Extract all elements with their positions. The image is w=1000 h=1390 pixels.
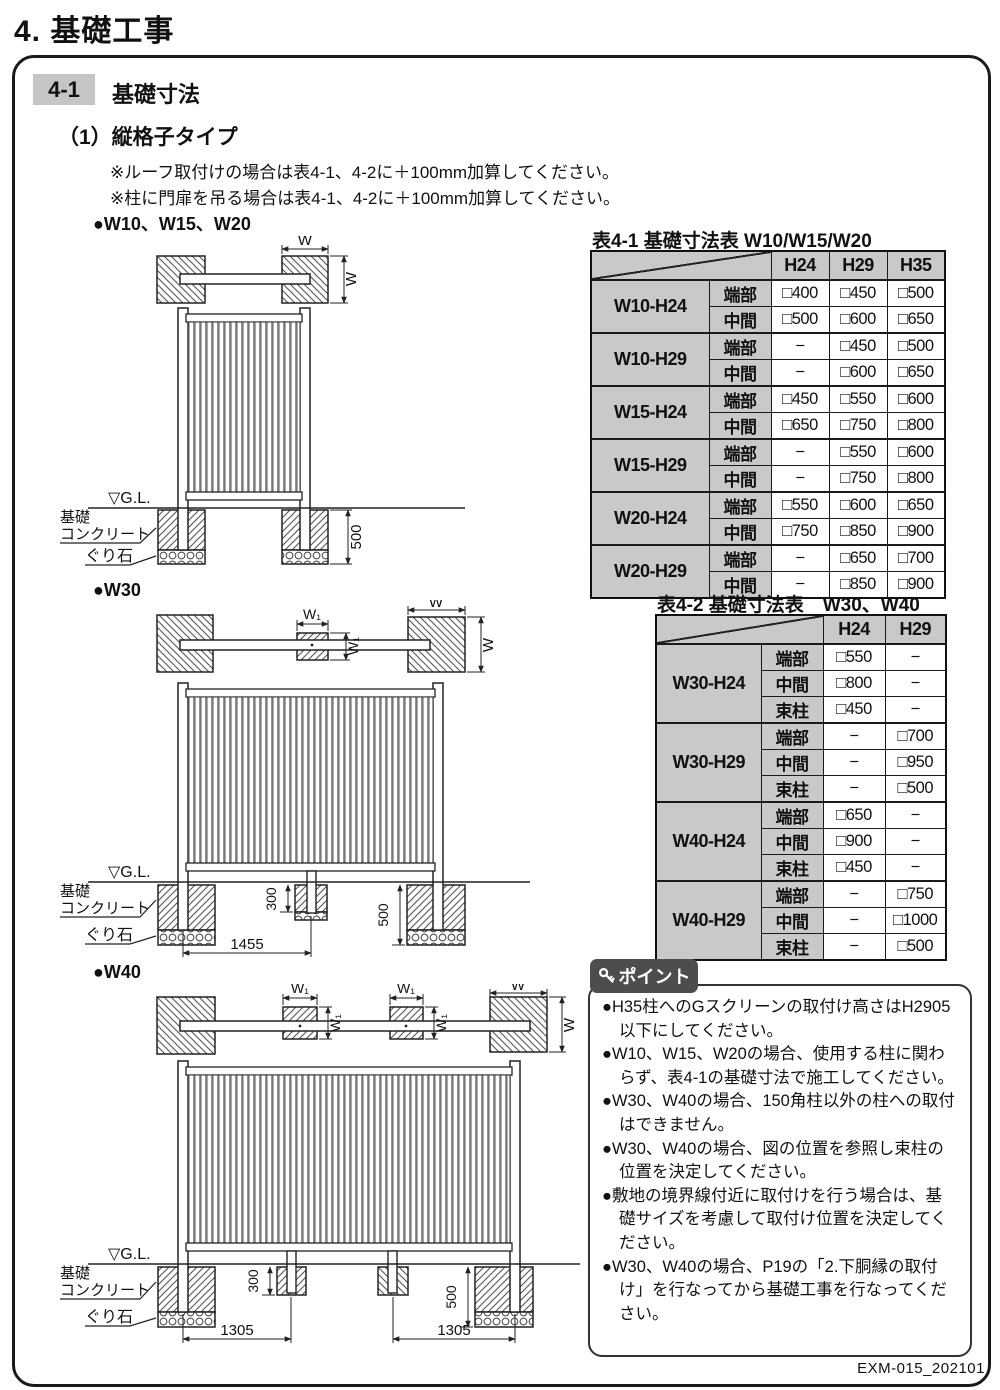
point-item: ●W30、W40の場合、150角柱以外の柱への取付はできません。 [602, 1090, 958, 1137]
concrete-label: 基礎 [60, 1265, 90, 1282]
dim-1455-label: 1455 [230, 936, 263, 953]
group-label: W15-H24 [591, 386, 709, 439]
value-cell: □450 [823, 855, 885, 882]
dim-500-label: 500 [348, 524, 365, 549]
subsection-title: （1）縦格子タイプ [58, 121, 238, 151]
value-cell: □450 [829, 280, 887, 307]
concrete-label: コンクリート [60, 526, 150, 543]
part-label: 端部 [761, 723, 823, 750]
value-cell: − [885, 802, 946, 829]
value-cell: □500 [771, 307, 829, 334]
part-label: 端部 [761, 802, 823, 829]
value-cell: □500 [887, 333, 945, 360]
dim-w-label: W [480, 637, 497, 652]
group-label: W30-H29 [656, 723, 761, 802]
value-cell: □900 [823, 829, 885, 855]
value-cell: □950 [885, 750, 946, 776]
part-label: 中間 [761, 750, 823, 776]
value-cell: □550 [823, 644, 885, 671]
column-header: H24 [771, 251, 829, 280]
value-cell: □450 [829, 333, 887, 360]
value-cell: □550 [829, 386, 887, 413]
part-label: 端部 [709, 439, 771, 466]
page-title: 4. 基礎工事 [14, 6, 174, 50]
value-cell: □450 [823, 697, 885, 724]
value-cell: − [885, 829, 946, 855]
concrete-label: コンクリート [60, 900, 150, 917]
part-label: 端部 [761, 881, 823, 908]
table-4-2-title: 表4-2 基礎寸法表 W30、W40 [657, 590, 920, 617]
table-4-2: H24 H29 W30-H24端部□550− 中間□800− 束柱□450− W… [655, 614, 947, 961]
value-cell: □400 [771, 280, 829, 307]
dim-w1-label: W₁ [345, 637, 361, 655]
group-label: W10-H29 [591, 333, 709, 386]
part-label: 中間 [709, 307, 771, 334]
gl-label: ▽G.L. [108, 1246, 151, 1263]
value-cell: □750 [829, 413, 887, 440]
note-line: ※柱に門扉を吊る場合は表4-1、4-2に＋100mm加算してください。 [110, 184, 620, 209]
dim-w1-label: W₁ [291, 984, 309, 996]
value-cell: □750 [885, 881, 946, 908]
stone-label: ぐり石 [85, 548, 133, 565]
value-cell: □750 [829, 466, 887, 493]
key-icon [598, 967, 616, 985]
dim-w1-label: W₁ [327, 1014, 343, 1032]
value-cell: − [823, 723, 885, 750]
group-label: W20-H24 [591, 492, 709, 545]
gl-label: ▽G.L. [108, 490, 151, 507]
dim-w-label: W [511, 984, 526, 994]
column-header: H29 [885, 615, 946, 644]
value-cell: □450 [771, 386, 829, 413]
value-cell: − [823, 776, 885, 803]
point-item: ●W30、W40の場合、P19の「2.下胴縁の取付け」を行なってから基礎工事を行… [602, 1256, 958, 1327]
group-label: W30-H24 [656, 644, 761, 723]
value-cell: − [885, 855, 946, 882]
value-cell: − [823, 881, 885, 908]
points-badge: ポイント [590, 959, 698, 993]
diagram-label-w30: ●W30 [93, 580, 141, 601]
stone-label: ぐり石 [85, 1309, 133, 1326]
diagram-label-w10: ●W10、W15、W20 [93, 210, 251, 236]
value-cell: − [885, 671, 946, 697]
point-item: ●W10、W15、W20の場合、使用する柱に関わらず、表4-1の基礎寸法で施工し… [602, 1043, 958, 1090]
page-footer: EXM-015_202101 [0, 1360, 985, 1377]
concrete-label: 基礎 [60, 509, 90, 526]
value-cell: − [771, 333, 829, 360]
value-cell: − [823, 934, 885, 961]
value-cell: − [885, 644, 946, 671]
part-label: 中間 [709, 413, 771, 440]
value-cell: − [885, 697, 946, 724]
table-4-1: H24 H29 H35 W10-H24端部□400□450□500 中間□500… [590, 250, 946, 599]
dim-w1-label: W₁ [397, 984, 415, 996]
stone-label: ぐり石 [85, 927, 133, 944]
manual-page: 4. 基礎工事 4-1 基礎寸法 （1）縦格子タイプ ※ルーフ取付けの場合は表4… [0, 0, 1000, 1390]
diagram-w30: W₁ W₁ W W ▽G.L. 300 500 [60, 600, 580, 960]
value-cell: □500 [887, 280, 945, 307]
concrete-label: コンクリート [60, 1282, 150, 1299]
dim-w-label: W [429, 600, 444, 611]
value-cell: − [823, 750, 885, 776]
section-title: 基礎寸法 [112, 77, 200, 109]
dim-w1-label: W₁ [433, 1014, 449, 1032]
value-cell: □650 [829, 545, 887, 572]
value-cell: − [771, 466, 829, 493]
points-badge-label: ポイント [619, 963, 691, 989]
part-label: 中間 [761, 908, 823, 934]
part-label: 端部 [709, 280, 771, 307]
part-label: 束柱 [761, 934, 823, 961]
dim-w-label: W [298, 236, 313, 249]
points-list: ●H35柱へのGスクリーンの取付け高さはH2905以下にしてください。 ●W10… [602, 996, 958, 1326]
value-cell: □700 [885, 723, 946, 750]
value-cell: □600 [829, 492, 887, 519]
value-cell: □600 [829, 307, 887, 334]
part-label: 束柱 [761, 776, 823, 803]
value-cell: □1000 [885, 908, 946, 934]
point-item: ●敷地の境界線付近に取付けを行う場合は、基礎サイズを考慮して取付け位置を決定して… [602, 1185, 958, 1256]
part-label: 束柱 [761, 697, 823, 724]
dim-300-label: 300 [263, 887, 279, 911]
group-label: W15-H29 [591, 439, 709, 492]
value-cell: □800 [823, 671, 885, 697]
group-label: W40-H29 [656, 881, 761, 960]
corner-cell [656, 615, 823, 644]
dim-1305-label: 1305 [220, 1322, 253, 1339]
part-label: 中間 [761, 671, 823, 697]
column-header: H29 [829, 251, 887, 280]
group-label: W10-H24 [591, 280, 709, 333]
dim-w-label: W [561, 1017, 578, 1032]
value-cell: − [771, 439, 829, 466]
part-label: 束柱 [761, 855, 823, 882]
value-cell: □700 [887, 545, 945, 572]
value-cell: □900 [887, 519, 945, 546]
value-cell: □650 [771, 413, 829, 440]
value-cell: □600 [887, 386, 945, 413]
value-cell: − [771, 360, 829, 387]
dim-500-label: 500 [443, 1285, 459, 1309]
point-item: ●W30、W40の場合、図の位置を参照し束柱の位置を決定してください。 [602, 1138, 958, 1185]
value-cell: □850 [829, 519, 887, 546]
value-cell: □500 [885, 776, 946, 803]
value-cell: □800 [887, 466, 945, 493]
part-label: 端部 [709, 492, 771, 519]
value-cell: □650 [887, 492, 945, 519]
part-label: 中間 [709, 466, 771, 493]
corner-cell [591, 251, 771, 280]
part-label: 中間 [709, 519, 771, 546]
point-item: ●H35柱へのGスクリーンの取付け高さはH2905以下にしてください。 [602, 996, 958, 1043]
value-cell: − [771, 545, 829, 572]
value-cell: □500 [885, 934, 946, 961]
value-cell: □550 [771, 492, 829, 519]
diagram-w40: W₁ W₁ W₁ W₁ W W ▽G.L. 300 [60, 984, 590, 1356]
value-cell: □750 [771, 519, 829, 546]
value-cell: □650 [887, 360, 945, 387]
part-label: 中間 [761, 829, 823, 855]
diagram-label-w40: ●W40 [93, 962, 141, 983]
value-cell: □600 [829, 360, 887, 387]
gl-label: ▽G.L. [108, 864, 151, 881]
part-label: 端部 [709, 333, 771, 360]
part-label: 端部 [761, 644, 823, 671]
value-cell: □600 [887, 439, 945, 466]
dim-w-label: W [343, 271, 360, 286]
concrete-label: 基礎 [60, 883, 90, 900]
section-badge: 4-1 [33, 74, 95, 105]
part-label: 中間 [709, 360, 771, 387]
part-label: 端部 [709, 386, 771, 413]
part-label: 端部 [709, 545, 771, 572]
value-cell: □650 [887, 307, 945, 334]
value-cell: − [823, 908, 885, 934]
dim-w1-label: W₁ [303, 606, 321, 622]
value-cell: □650 [823, 802, 885, 829]
group-label: W40-H24 [656, 802, 761, 881]
column-header: H35 [887, 251, 945, 280]
dim-1305-label: 1305 [437, 1322, 470, 1339]
value-cell: □800 [887, 413, 945, 440]
table-4-1-title: 表4-1 基礎寸法表 W10/W15/W20 [592, 226, 872, 253]
dim-500-label: 500 [375, 903, 391, 927]
dim-300-label: 300 [245, 1269, 261, 1293]
diagram-w10-w15-w20: W W ▽G.L. 500 基礎 コンクリート ぐり石 [60, 236, 580, 580]
column-header: H24 [823, 615, 885, 644]
note-line: ※ルーフ取付けの場合は表4-1、4-2に＋100mm加算してください。 [110, 158, 619, 183]
value-cell: □550 [829, 439, 887, 466]
